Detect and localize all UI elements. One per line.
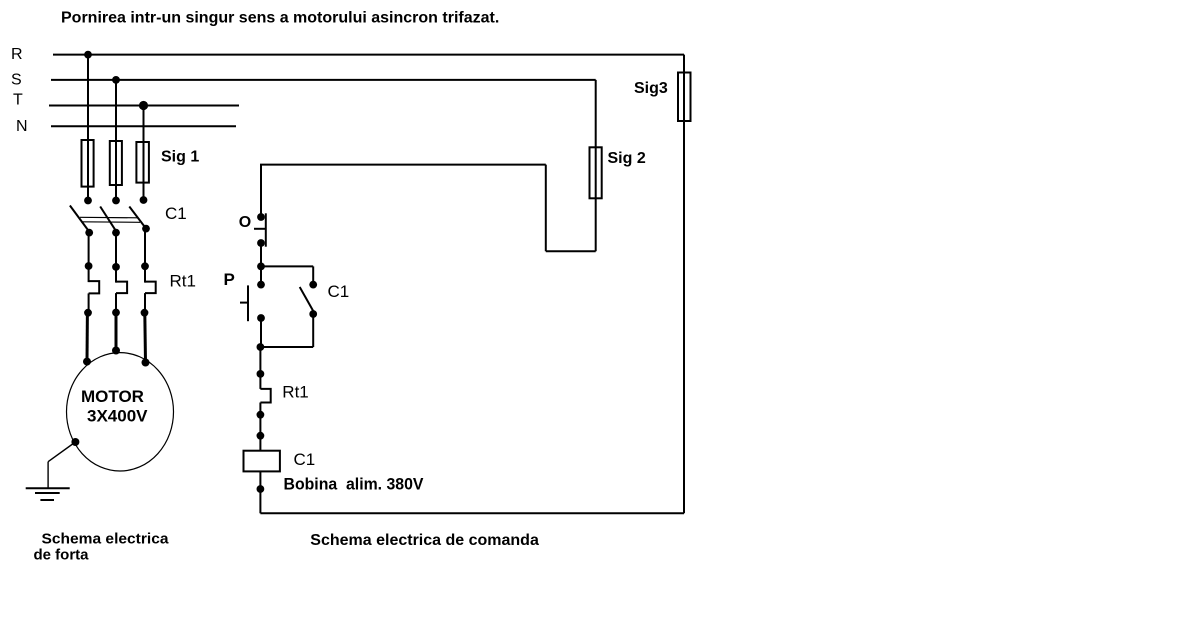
svg-text:Rt1: Rt1 [170, 272, 196, 291]
svg-text:R: R [11, 46, 23, 63]
svg-text:P: P [224, 270, 235, 289]
svg-text:Schema electrica de comanda: Schema electrica de comanda [310, 532, 539, 549]
svg-text:Sig 1: Sig 1 [161, 149, 199, 166]
svg-text:O: O [239, 214, 251, 231]
svg-text:C1: C1 [328, 282, 350, 301]
svg-text:C1: C1 [294, 450, 316, 469]
svg-text:Rt1: Rt1 [282, 382, 308, 401]
svg-text:T: T [13, 92, 23, 109]
svg-text:Schema electrica: Schema electrica [42, 531, 170, 548]
svg-text:Sig 2: Sig 2 [608, 150, 646, 167]
svg-text:3X400V: 3X400V [87, 407, 148, 426]
svg-text:de forta: de forta [34, 547, 90, 564]
svg-text:Sig3: Sig3 [634, 80, 668, 97]
svg-text:N: N [16, 118, 28, 135]
svg-text:Bobina alim. 380V: Bobina alim. 380V [284, 475, 424, 493]
svg-text:S: S [11, 72, 22, 89]
svg-text:Pornirea intr-un singur sens a: Pornirea intr-un singur sens a motorului… [61, 10, 499, 27]
svg-text:MOTOR: MOTOR [81, 387, 144, 406]
svg-text:C1: C1 [165, 204, 187, 223]
